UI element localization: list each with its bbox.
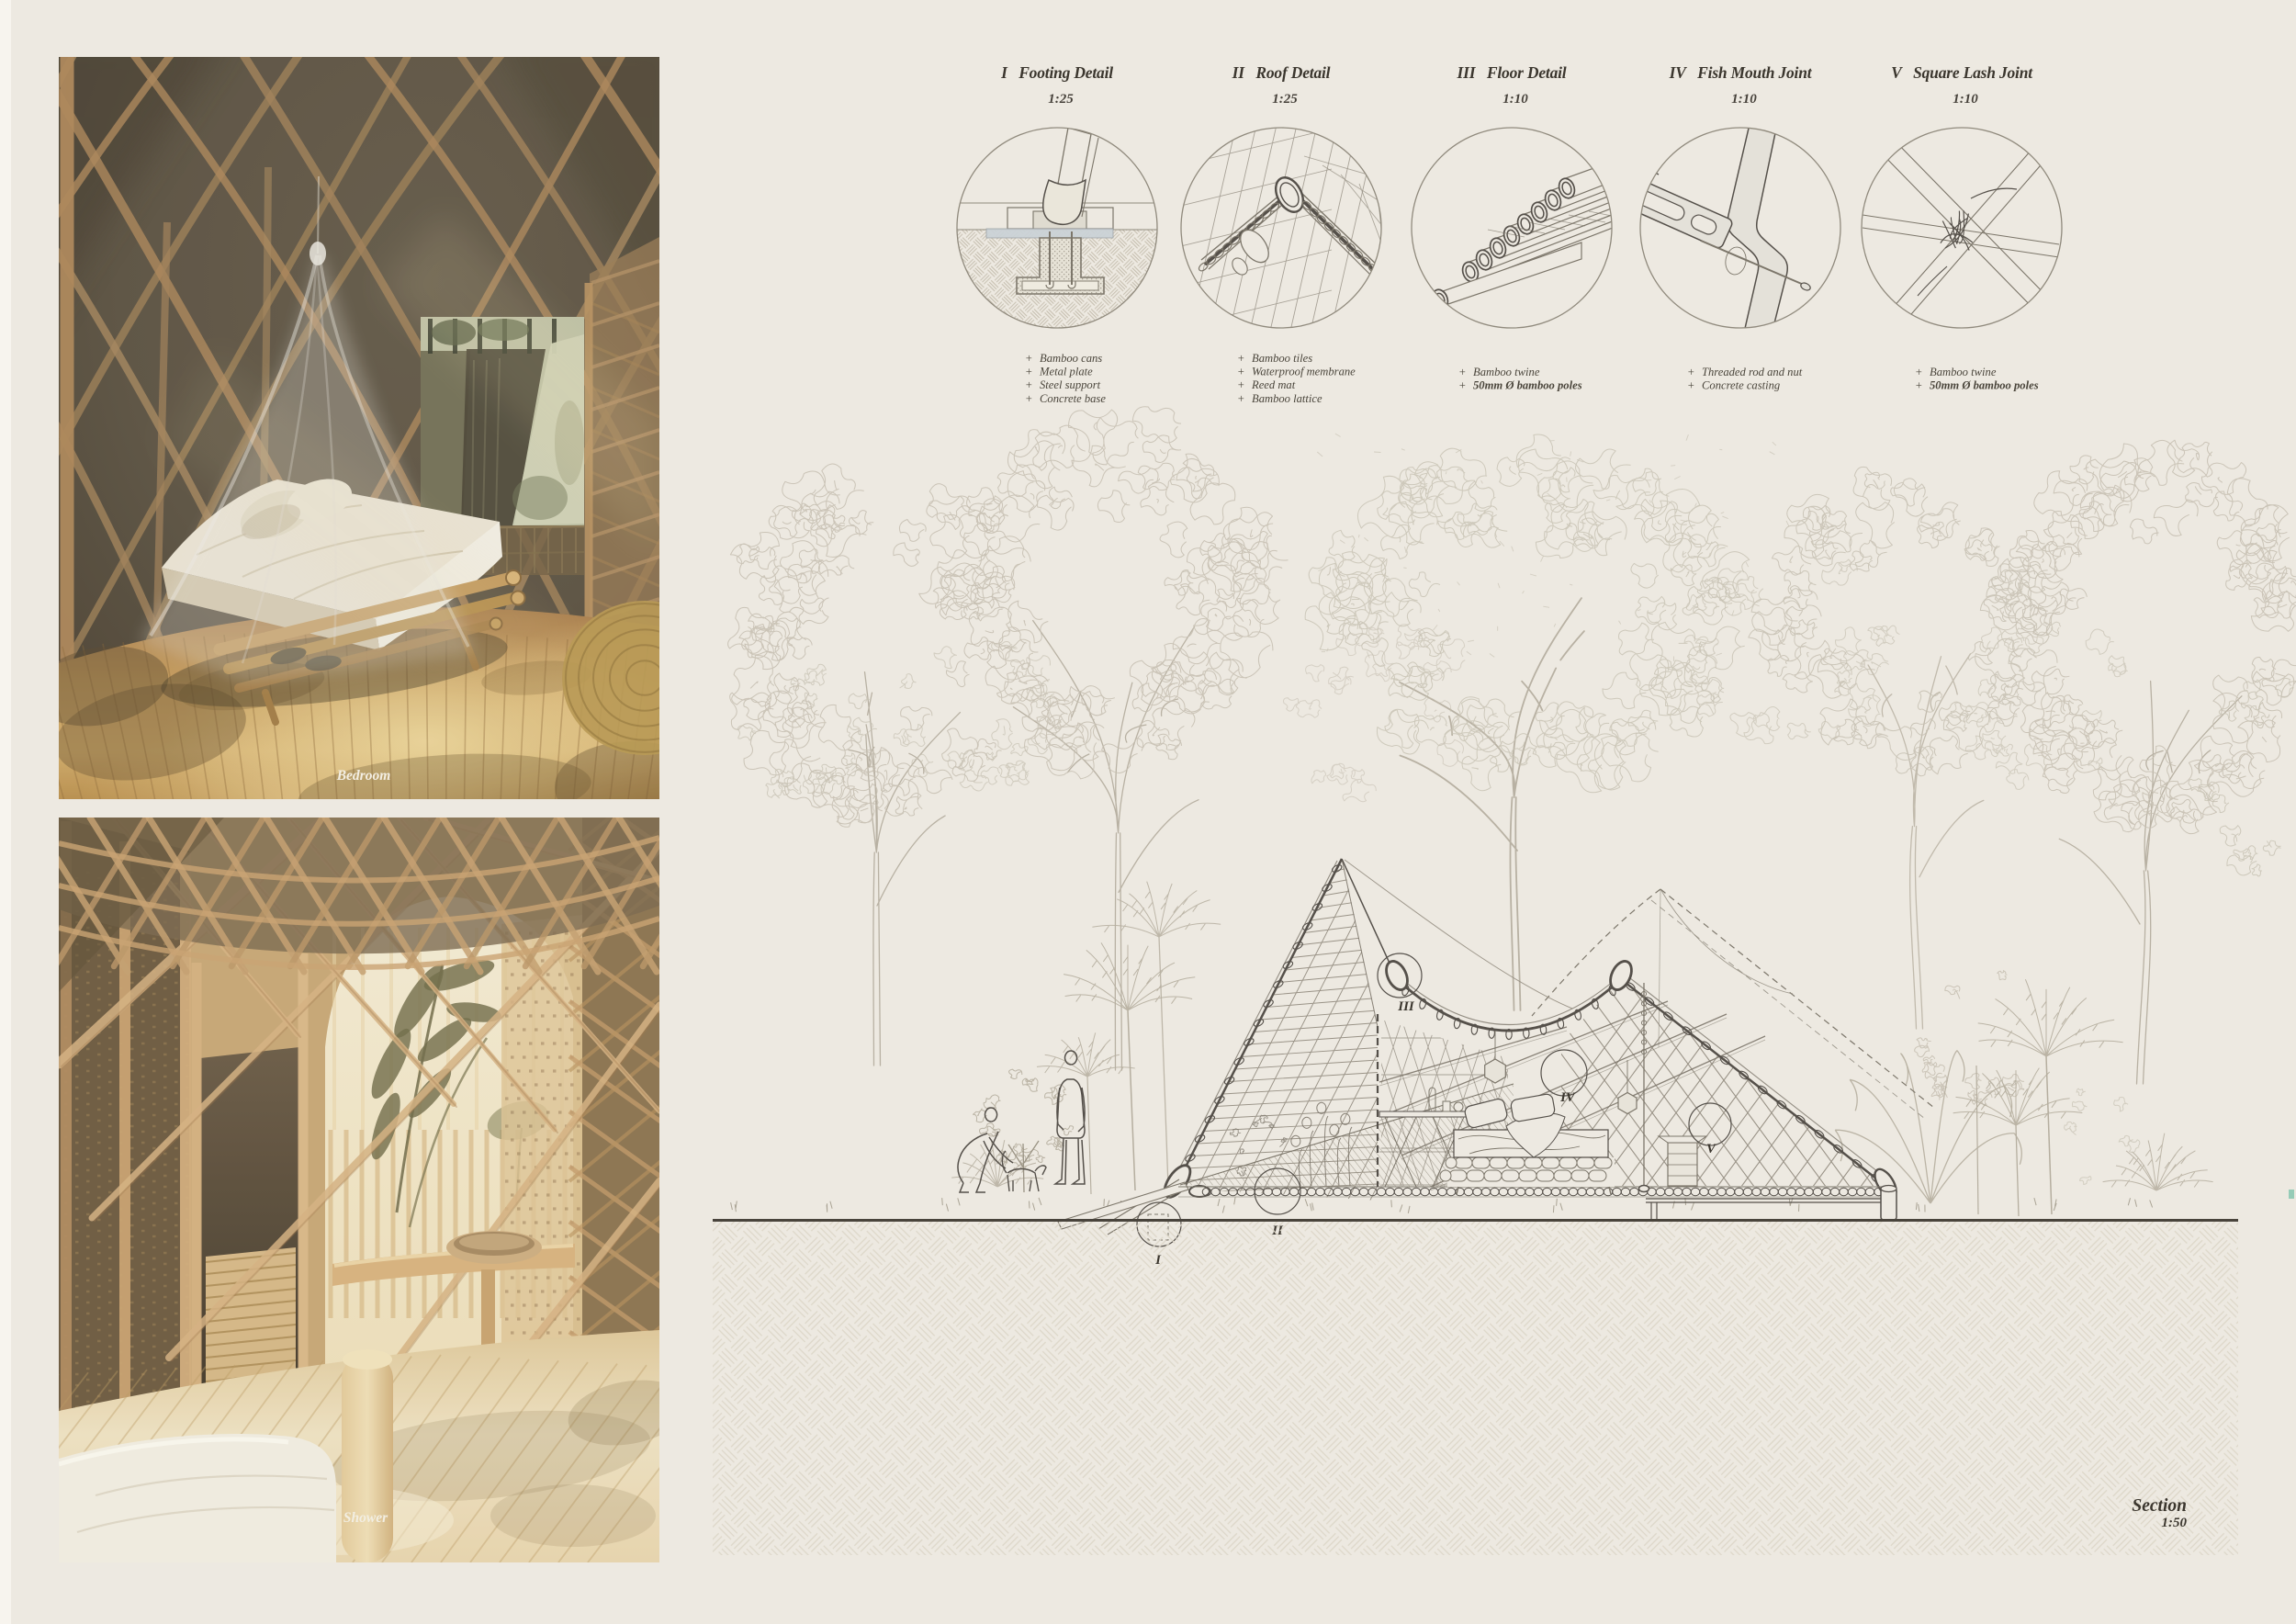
svg-text:+: + bbox=[1025, 366, 1032, 378]
svg-text:IV: IV bbox=[1559, 1090, 1577, 1105]
svg-text:III: III bbox=[1397, 999, 1415, 1014]
svg-text:+: + bbox=[1687, 379, 1694, 392]
svg-text:II Roof Detail: II Roof Detail bbox=[1232, 63, 1331, 82]
svg-text:Section: Section bbox=[2132, 1496, 2187, 1516]
svg-text:+: + bbox=[1025, 378, 1032, 391]
svg-text:1:25: 1:25 bbox=[1272, 92, 1298, 107]
svg-text:+: + bbox=[1025, 392, 1032, 405]
svg-text:+: + bbox=[1458, 379, 1466, 392]
svg-text:Steel support: Steel support bbox=[1040, 378, 1101, 391]
svg-text:Bamboo twine: Bamboo twine bbox=[1930, 366, 1997, 378]
svg-text:+: + bbox=[1458, 366, 1466, 378]
svg-text:+: + bbox=[1915, 366, 1922, 378]
svg-text:Metal plate: Metal plate bbox=[1039, 366, 1093, 378]
svg-text:+: + bbox=[1915, 379, 1922, 392]
svg-text:Bamboo twine: Bamboo twine bbox=[1473, 366, 1540, 378]
svg-text:1:10: 1:10 bbox=[1731, 92, 1757, 107]
svg-text:1:50: 1:50 bbox=[2162, 1516, 2188, 1530]
svg-text:+: + bbox=[1025, 352, 1032, 365]
svg-text:III Floor Detail: III Floor Detail bbox=[1457, 63, 1567, 82]
svg-text:Bamboo tiles: Bamboo tiles bbox=[1252, 352, 1312, 365]
svg-text:50mm Ø bamboo poles: 50mm Ø bamboo poles bbox=[1930, 379, 2039, 392]
svg-text:50mm Ø bamboo poles: 50mm Ø bamboo poles bbox=[1473, 379, 1582, 392]
svg-text:+: + bbox=[1237, 378, 1244, 391]
svg-text:+: + bbox=[1237, 366, 1244, 378]
svg-text:Bamboo cans: Bamboo cans bbox=[1040, 352, 1102, 365]
svg-text:+: + bbox=[1237, 352, 1244, 365]
svg-text:Bamboo lattice: Bamboo lattice bbox=[1252, 392, 1322, 405]
svg-text:V: V bbox=[1706, 1142, 1717, 1156]
svg-text:1:10: 1:10 bbox=[1503, 92, 1528, 107]
svg-text:+: + bbox=[1237, 392, 1244, 405]
svg-text:Reed mat: Reed mat bbox=[1251, 378, 1296, 391]
svg-text:V Square Lash Joint: V Square Lash Joint bbox=[1891, 63, 2033, 82]
svg-text:+: + bbox=[1687, 366, 1694, 378]
svg-text:I Footing Detail: I Footing Detail bbox=[1000, 63, 1113, 82]
svg-text:Concrete casting: Concrete casting bbox=[1702, 379, 1780, 392]
svg-text:IV Fish Mouth Joint: IV Fish Mouth Joint bbox=[1669, 63, 1813, 82]
svg-text:Concrete base: Concrete base bbox=[1040, 392, 1106, 405]
svg-text:Threaded rod and nut: Threaded rod and nut bbox=[1702, 366, 1803, 378]
svg-text:1:10: 1:10 bbox=[1953, 92, 1978, 107]
svg-text:Waterproof membrane: Waterproof membrane bbox=[1252, 366, 1356, 378]
svg-text:1:25: 1:25 bbox=[1048, 92, 1074, 107]
